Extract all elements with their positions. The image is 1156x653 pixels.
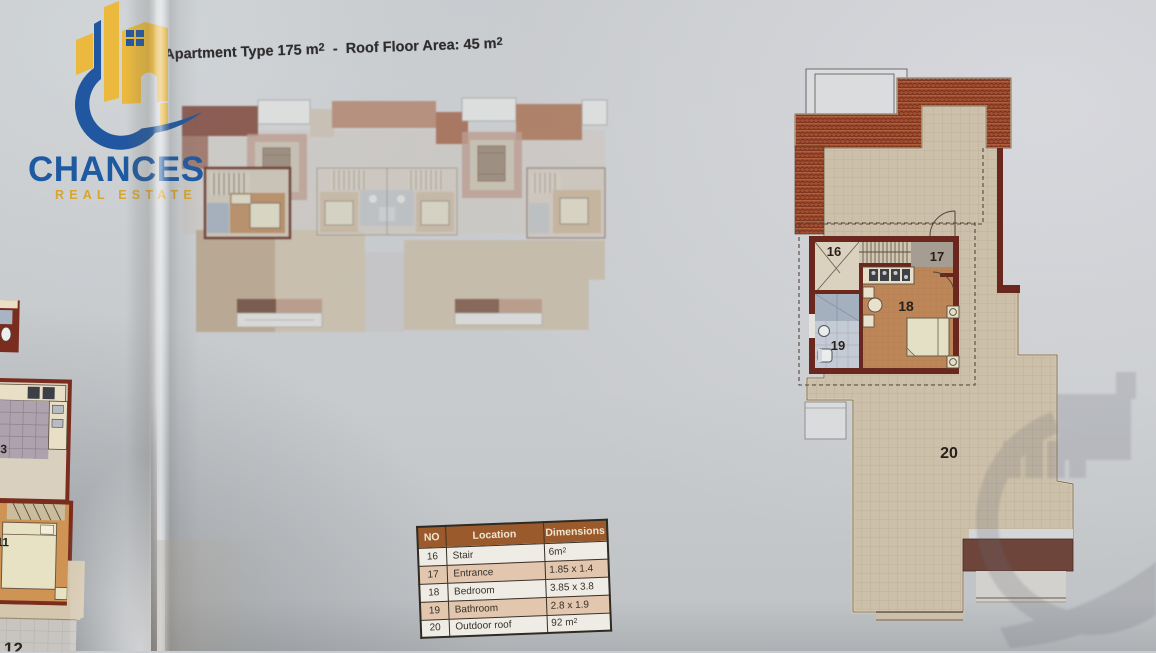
svg-text:16: 16 <box>827 244 841 259</box>
svg-text:17: 17 <box>930 249 944 264</box>
svg-text:19: 19 <box>831 338 845 353</box>
svg-text:3: 3 <box>0 442 7 456</box>
svg-text:18: 18 <box>898 298 914 314</box>
svg-text:11: 11 <box>0 535 9 549</box>
